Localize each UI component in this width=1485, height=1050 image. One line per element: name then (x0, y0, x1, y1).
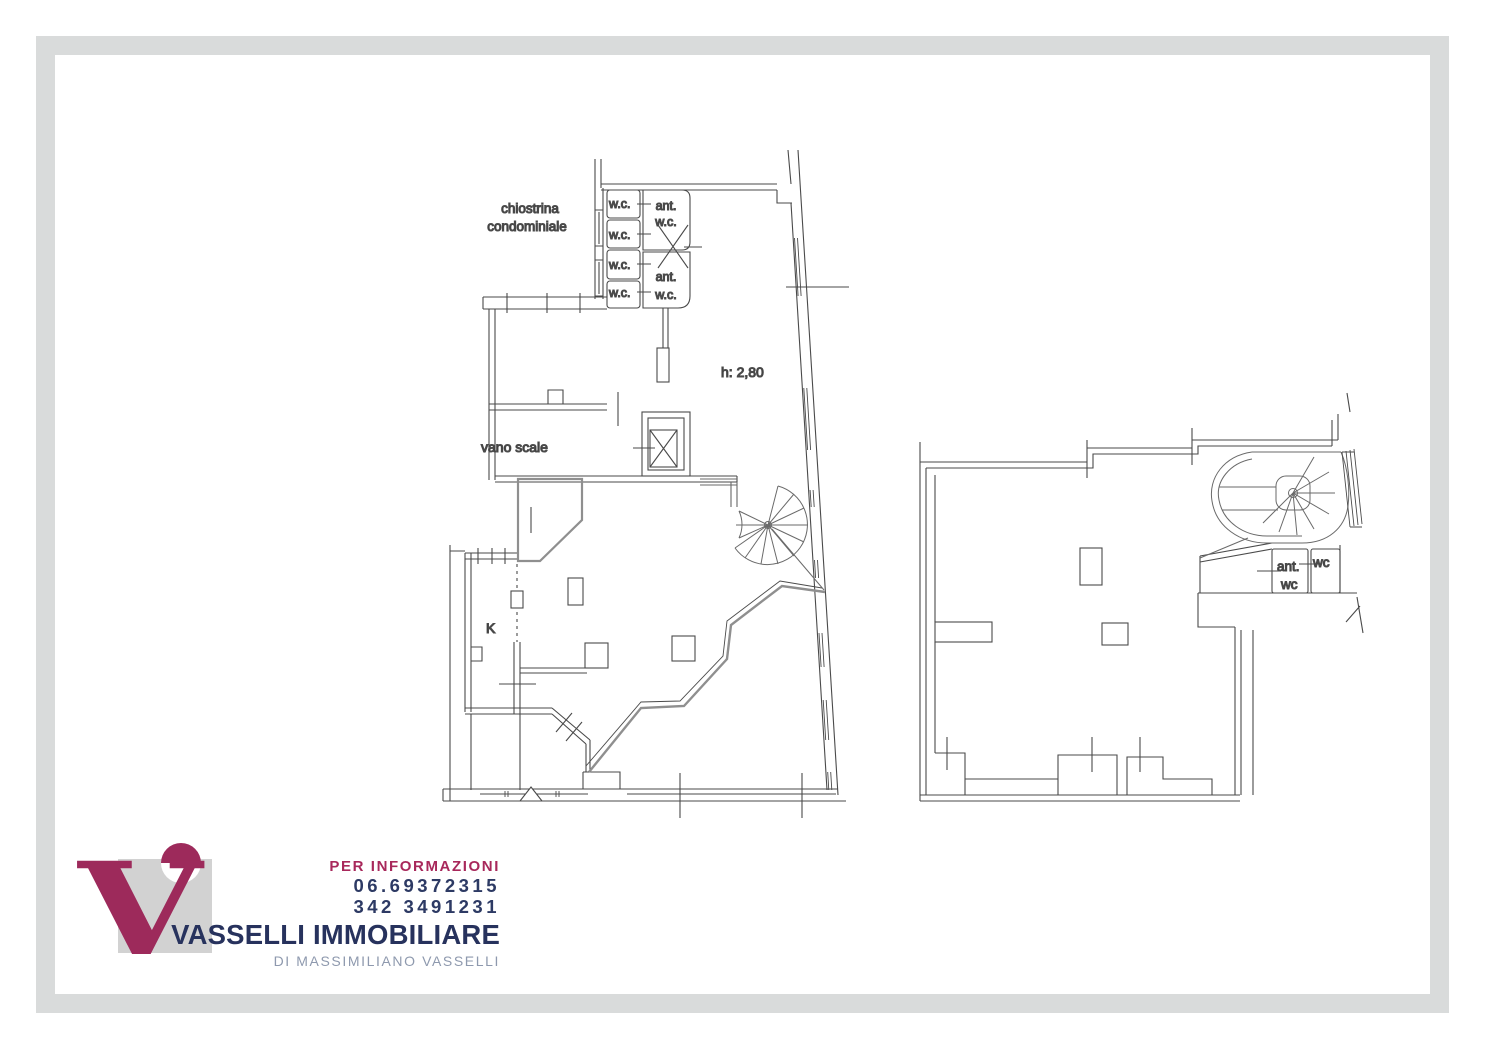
pillar-cluster (520, 578, 695, 673)
label-height: h: 2,80 (721, 364, 764, 380)
left-plan-bottom-wall (443, 773, 846, 818)
label-wc-3: w.c. (608, 258, 631, 272)
label-wc-2: w.c. (608, 228, 631, 242)
chiostrina-wall (595, 188, 603, 299)
label-kitchen: K (486, 620, 496, 636)
right-plan-bottom-wall (920, 627, 1253, 801)
right-plan-left-wall (920, 462, 935, 801)
label-right-ant-1: ant. (1277, 559, 1300, 574)
vano-scale-room (489, 309, 737, 507)
floor-plan-left: chiostrina condominiale w.c. w.c. w.c. w… (443, 150, 849, 818)
left-plan-top-wall (595, 150, 838, 795)
right-plan-top-wall (920, 393, 1350, 478)
agency-tagline: DI MASSIMILIANO VASSELLI (170, 953, 500, 969)
label-chiostrina-2: condominiale (487, 219, 567, 234)
wall-notch (935, 622, 992, 642)
label-wc-4: w.c. (608, 286, 631, 300)
interior-room-topleft (518, 479, 582, 561)
right-plan-window-wall (1342, 449, 1362, 527)
diagonal-partition (552, 708, 590, 772)
spiral-staircase-left (700, 479, 824, 590)
door-swing-x (658, 225, 702, 268)
label-right-wc: wc (1312, 555, 1330, 570)
left-plan-right-windows (795, 238, 832, 790)
label-antwc-bottom-1: ant. (656, 270, 677, 284)
agency-name: VASSELLI IMMOBILIARE (170, 919, 500, 951)
pillar-2 (1102, 623, 1128, 645)
elevator-x (633, 430, 677, 467)
flyer-page: { "plan_left": { "labels": { "chiostrina… (0, 0, 1485, 1050)
inner-wall-gray (589, 586, 825, 772)
label-antwc-top-2: w.c. (654, 215, 677, 229)
bottom-closets (935, 737, 1212, 795)
spiral-staircase-right (1200, 452, 1349, 558)
label-antwc-bottom-2: w.c. (654, 288, 677, 302)
chiostrina-window-band (483, 293, 607, 313)
label-vano-scale: vano scale (481, 439, 548, 455)
label-right-ant-2: wc (1280, 577, 1298, 592)
agency-contact-block: PER INFORMAZIONI 06.69372315 342 3491231… (170, 858, 500, 969)
label-wc-1: w.c. (608, 197, 631, 211)
phone-mobile: 342 3491231 (170, 898, 500, 917)
floor-plan-right: ant. wc wc (920, 393, 1363, 801)
info-heading: PER INFORMAZIONI (170, 858, 500, 875)
phone-landline: 06.69372315 (170, 877, 500, 896)
label-antwc-top-1: ant. (656, 199, 677, 213)
radiator-box (657, 348, 669, 382)
pillar-1 (1080, 548, 1102, 585)
label-chiostrina-1: chiostrina (501, 201, 559, 216)
radiator (663, 308, 668, 348)
inner-wall-gray-offset (586, 581, 822, 766)
